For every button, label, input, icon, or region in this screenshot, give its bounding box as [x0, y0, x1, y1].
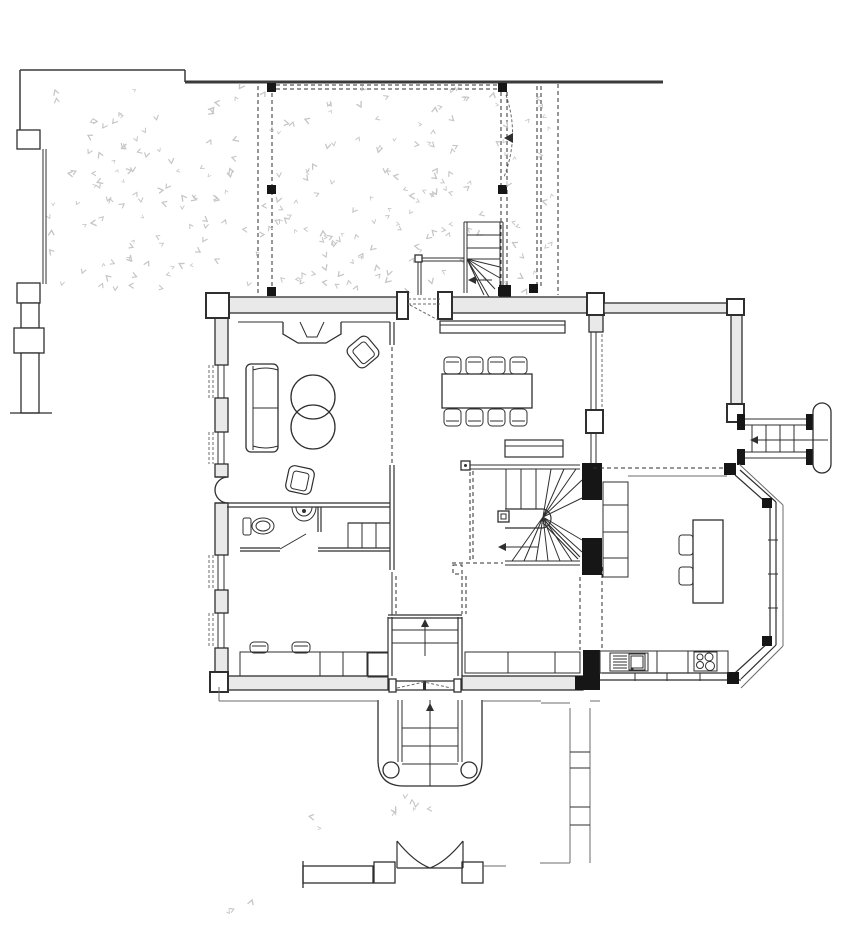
stipple-mark	[60, 281, 65, 285]
stipple-mark	[133, 136, 139, 141]
stipple-mark	[517, 273, 524, 281]
stipple-mark	[441, 269, 446, 274]
stipple-mark	[319, 237, 325, 243]
pergola	[258, 83, 558, 296]
terrace-wing	[604, 299, 831, 473]
stipple-mark	[340, 232, 344, 236]
stipple-mark	[207, 173, 211, 177]
stipple-mark	[418, 122, 422, 126]
stipple-mark	[294, 200, 298, 204]
stipple-mark	[278, 206, 284, 212]
living-room	[246, 334, 381, 496]
stipple-mark	[283, 120, 289, 126]
stipple-mark	[142, 128, 148, 134]
stipple-mark	[140, 215, 144, 219]
stipple-mark	[47, 248, 54, 255]
closet	[348, 523, 390, 548]
stipple-mark	[101, 123, 108, 130]
stipple-mark	[201, 237, 208, 243]
stipple-mark	[502, 139, 507, 144]
wc	[243, 507, 390, 548]
stipple-mark	[322, 280, 328, 286]
garden-wall	[303, 866, 373, 883]
stipple-mark	[393, 138, 397, 141]
round-table	[291, 375, 335, 419]
stipple-mark	[495, 140, 501, 147]
stipple-mark	[516, 224, 521, 229]
path-steps	[570, 752, 590, 825]
stipple-mark	[52, 89, 59, 96]
stipple-mark	[428, 278, 435, 285]
stipple-mark	[322, 252, 328, 258]
bay-mullion	[762, 498, 772, 508]
stipple-mark	[293, 229, 297, 233]
entrance-door-swing	[408, 299, 440, 320]
stipple-mark	[452, 143, 458, 149]
stipple-mark	[231, 155, 237, 161]
stipple-mark	[548, 241, 554, 247]
stipple-mark	[414, 244, 420, 250]
hall-dashed-lines	[392, 472, 470, 614]
stipple-mark	[369, 196, 374, 201]
stipple-mark	[86, 133, 93, 140]
stipple-mark	[246, 281, 251, 286]
north-wall	[215, 297, 408, 313]
stipple-mark	[144, 260, 151, 267]
stipple-mark	[104, 274, 112, 282]
dining-table	[442, 374, 532, 408]
stipple-mark	[418, 248, 422, 252]
stipple-mark	[176, 169, 180, 173]
faucet	[302, 509, 306, 513]
stipple-mark	[511, 220, 516, 225]
stipple-mark	[356, 101, 364, 108]
stool	[679, 567, 693, 585]
stipple-mark	[441, 227, 446, 232]
stipple-mark	[414, 141, 419, 147]
stipple-mark	[109, 260, 115, 266]
stipple-mark	[158, 285, 163, 291]
stipple-mark	[180, 206, 184, 210]
stipple-mark	[543, 244, 549, 250]
fence-post	[14, 328, 44, 353]
scroll-newel	[383, 762, 399, 778]
stipple-mark	[448, 190, 453, 195]
dining-chair	[444, 409, 461, 426]
stipple-mark	[513, 157, 516, 160]
dining-room	[440, 321, 565, 457]
stipple-mark	[369, 245, 376, 252]
stipple-mark	[334, 282, 340, 288]
stipple-mark	[164, 183, 171, 190]
stipple-mark	[132, 191, 138, 197]
entry-winder-stair	[415, 222, 511, 297]
toilet	[252, 518, 274, 534]
stipple-mark	[277, 172, 282, 177]
stair-post	[498, 511, 509, 522]
stipple-mark	[132, 88, 136, 92]
stipple-mark	[161, 200, 167, 207]
stipple-mark	[440, 179, 445, 185]
stipple-mark	[327, 234, 333, 241]
corner-pier	[575, 650, 600, 690]
stipple-mark	[311, 271, 316, 276]
stipple-mark	[375, 273, 381, 279]
burner	[697, 654, 703, 660]
stair-direction-arrow	[421, 619, 429, 627]
fence-post	[17, 283, 40, 303]
stipple-mark	[372, 219, 377, 224]
round-table	[291, 405, 335, 449]
gate-post	[462, 862, 483, 883]
stipple-mark	[489, 92, 496, 98]
stipple-mark	[455, 87, 459, 91]
stipple-mark	[178, 261, 185, 269]
stipple-mark	[119, 202, 126, 209]
garden-path	[540, 708, 590, 863]
stipple-mark	[214, 257, 221, 264]
sideboard	[440, 321, 565, 333]
stipple-mark	[430, 229, 438, 237]
wall-pier	[586, 410, 603, 433]
stipple-mark	[432, 107, 438, 113]
stipple-mark	[188, 223, 194, 229]
stipple-mark	[384, 277, 392, 285]
stipple-mark	[427, 141, 431, 146]
stair-direction-arrow	[498, 543, 506, 551]
main-house-walls	[206, 292, 604, 692]
corner-block	[206, 293, 229, 318]
bay-post	[727, 672, 739, 684]
corner-block	[397, 292, 408, 319]
stipple-mark	[396, 222, 400, 226]
stipple-mark	[158, 187, 164, 193]
stipple-mark	[144, 152, 150, 158]
pergola-post	[498, 185, 507, 194]
stipple-mark	[325, 143, 331, 149]
stipple-mark	[226, 909, 231, 914]
stipple-mark	[317, 826, 321, 830]
stipple-mark	[431, 173, 439, 181]
burner	[706, 662, 715, 671]
stipple-mark	[131, 272, 137, 279]
newel-post	[499, 285, 511, 297]
stipple-mark	[467, 180, 472, 185]
stipple-mark	[199, 165, 204, 170]
bench-cabinet-row	[240, 652, 388, 676]
stipple-mark	[96, 151, 103, 158]
stipple-mark	[350, 259, 355, 264]
kitchen-island	[693, 520, 723, 603]
stipple-mark	[203, 224, 208, 229]
stipple-mark	[521, 288, 529, 295]
landing-rail	[418, 258, 464, 295]
stipple-mark	[447, 171, 454, 177]
stipple-mark	[409, 257, 415, 263]
stipple-mark	[546, 126, 550, 130]
stipple-mark	[248, 899, 255, 906]
stipple-mark	[385, 214, 390, 219]
kitchen-bay	[593, 463, 783, 688]
stipple-mark	[213, 195, 218, 200]
stipple-mark	[437, 104, 442, 109]
fireplace	[283, 322, 341, 343]
pergola-post	[498, 83, 507, 92]
burner	[697, 662, 704, 669]
stipple-mark	[309, 814, 315, 820]
dining-chair	[466, 357, 483, 374]
stipple-mark	[412, 807, 416, 811]
stipple-mark	[92, 171, 96, 176]
armchair	[345, 334, 382, 371]
floor-plan-drawing	[0, 0, 858, 930]
stipple-mark	[511, 240, 518, 248]
stipple-mark	[448, 115, 455, 122]
stipple-mark	[138, 198, 143, 203]
newel-column	[813, 403, 831, 473]
stipple-mark	[168, 158, 174, 164]
armchair	[285, 465, 316, 496]
corner-block	[587, 293, 604, 315]
stipple-mark	[476, 230, 484, 238]
pergola-post	[267, 287, 276, 296]
scroll-newel	[461, 762, 477, 778]
stipple-mark	[525, 118, 530, 123]
stair-direction-arrow	[468, 276, 476, 284]
stipple-mark	[262, 203, 267, 208]
stipple-mark	[98, 283, 104, 289]
stipple-mark	[386, 270, 393, 276]
stipple-mark	[277, 131, 281, 134]
stipple-mark	[206, 139, 213, 145]
stipple-mark	[542, 114, 547, 119]
stipple-mark	[98, 215, 104, 221]
terrace-door	[591, 433, 596, 463]
pantry-shelves	[603, 482, 628, 577]
stipple-mark	[237, 83, 245, 91]
stipple-mark	[86, 149, 92, 155]
stipple-mark	[227, 171, 234, 177]
stipple-mark	[92, 183, 96, 187]
vestibule	[388, 615, 462, 692]
stipple-mark	[215, 100, 221, 106]
gate-leaves	[397, 841, 463, 868]
stipple-mark	[403, 187, 408, 192]
stipple-mark	[111, 159, 116, 164]
stipple-mark	[320, 231, 326, 237]
gate-post	[374, 862, 395, 883]
faucet	[631, 668, 634, 671]
stipple-mark	[346, 280, 352, 285]
kitchen-counter	[600, 651, 728, 673]
stipple-mark	[275, 196, 282, 203]
pergola-post	[529, 284, 538, 293]
wall-niche	[215, 477, 228, 503]
pergola-post	[267, 83, 276, 92]
stipple-mark	[243, 227, 248, 232]
stipple-mark	[166, 272, 171, 277]
door-leaf	[280, 534, 306, 549]
stipple-mark	[353, 234, 359, 239]
lower-left-room	[240, 642, 388, 676]
dining-chair	[510, 409, 527, 426]
stipple-mark	[113, 286, 118, 290]
kitchen-wall-piers	[582, 463, 602, 575]
stipple-mark	[322, 264, 329, 271]
garden-gate	[303, 841, 506, 888]
stair-direction-arrow	[750, 436, 758, 444]
south-wall	[462, 676, 583, 690]
stipple-mark	[393, 173, 399, 179]
stipple-mark	[375, 116, 380, 121]
stool	[292, 642, 310, 653]
stipple-mark	[542, 199, 548, 206]
stipple-mark	[128, 243, 134, 249]
dining-chair	[488, 357, 505, 374]
stipple-mark	[111, 118, 118, 125]
cabinet-row	[465, 652, 580, 673]
stipple-mark	[299, 280, 305, 286]
stipple-mark	[259, 232, 264, 238]
stipple-mark	[373, 265, 380, 271]
stipple-mark	[232, 136, 239, 143]
stipple-mark	[180, 194, 188, 202]
floor-plan-canvas	[0, 0, 858, 930]
stipple-mark	[126, 255, 134, 263]
stipple-mark	[479, 211, 485, 217]
stipple-mark	[403, 794, 408, 798]
stipple-mark	[254, 251, 259, 256]
corner-block	[438, 292, 452, 319]
stipple-mark	[51, 202, 55, 205]
stipple-mark	[328, 109, 332, 113]
stipple-mark	[155, 234, 160, 240]
stipple-mark	[154, 115, 160, 120]
stool	[679, 535, 693, 555]
stipple-mark	[304, 117, 311, 124]
stipple-mark	[233, 96, 238, 101]
stipple-mark	[221, 219, 227, 225]
stipple-mark	[121, 179, 125, 183]
spiral-stair	[452, 461, 602, 650]
burner	[705, 653, 713, 661]
toilet-tank	[243, 518, 251, 535]
stipple-mark	[304, 227, 308, 232]
stipple-mark	[80, 268, 86, 274]
stipple-mark	[224, 190, 229, 195]
stipple-mark	[300, 272, 306, 278]
stipple-mark	[532, 270, 536, 274]
stipple-mark	[289, 121, 295, 127]
window	[591, 332, 596, 410]
stipple-mark	[278, 218, 283, 223]
stipple-mark	[408, 209, 413, 214]
stipple-mark	[195, 247, 202, 254]
stipple-mark	[353, 285, 359, 291]
dining-chair	[488, 409, 505, 426]
stipple-mark	[159, 241, 164, 246]
stipple-mark	[324, 235, 327, 239]
stipple-mark	[331, 141, 336, 146]
stipple-mark	[446, 232, 452, 237]
stipple-mark	[330, 179, 335, 184]
site-boundary	[10, 70, 663, 413]
sideboard	[505, 440, 563, 457]
stipple-mark	[202, 216, 209, 223]
terrace-stair	[737, 403, 831, 473]
stipple-mark	[190, 264, 193, 268]
stipple-mark	[397, 226, 402, 232]
stipple-mark	[425, 234, 432, 241]
dining-chair	[444, 357, 461, 374]
bay-post	[724, 463, 736, 475]
stipple-mark	[296, 277, 300, 282]
stair-direction-arrow	[426, 703, 434, 711]
south-wall	[227, 676, 388, 690]
stipple-mark	[538, 153, 542, 158]
stipple-mark	[131, 239, 136, 244]
stipple-mark	[310, 163, 317, 170]
stipple-mark	[449, 148, 455, 153]
south-cabinets	[368, 652, 580, 677]
stipple-mark	[387, 207, 392, 212]
stipple-mark	[432, 167, 439, 174]
stipple-mark	[443, 186, 448, 191]
stool	[250, 642, 268, 653]
dining-chair	[510, 357, 527, 374]
stipple-mark	[410, 193, 416, 199]
stipple-mark	[75, 201, 80, 206]
dining-chair	[466, 409, 483, 426]
stipple-mark	[96, 183, 102, 189]
stipple-mark	[383, 94, 389, 100]
stipple-mark	[91, 220, 97, 226]
stipple-mark	[503, 122, 510, 129]
stipple-mark	[355, 136, 360, 141]
stipple-mark	[82, 223, 87, 228]
stipple-mark	[351, 207, 358, 214]
corner-block	[727, 299, 744, 315]
stipple-mark	[427, 807, 432, 812]
stipple-mark	[129, 283, 134, 288]
stipple-mark	[48, 230, 54, 236]
stipple-mark	[495, 103, 498, 107]
stipple-mark	[279, 276, 285, 282]
stipple-mark	[102, 263, 106, 266]
bay-mullion	[762, 636, 772, 646]
stipple-mark	[449, 222, 453, 226]
stipple-mark	[137, 148, 143, 154]
stipple-mark	[431, 130, 436, 134]
stipple-mark	[260, 91, 267, 98]
stipple-mark	[287, 213, 292, 218]
window-box	[368, 653, 388, 677]
stipple-mark	[336, 271, 344, 279]
fence-post	[17, 130, 40, 149]
stipple-mark	[68, 171, 74, 177]
stipple-mark	[54, 98, 60, 103]
north-wall	[440, 297, 589, 313]
porch-stair	[378, 700, 482, 786]
stipple-mark	[170, 265, 174, 270]
stipple-mark	[303, 175, 310, 182]
stipple-mark	[519, 253, 525, 259]
stipple-mark	[157, 148, 162, 152]
stipple-mark	[422, 189, 427, 194]
stipple-mark	[46, 214, 51, 219]
gravel-terrace	[46, 83, 553, 915]
stipple-mark	[504, 152, 509, 157]
